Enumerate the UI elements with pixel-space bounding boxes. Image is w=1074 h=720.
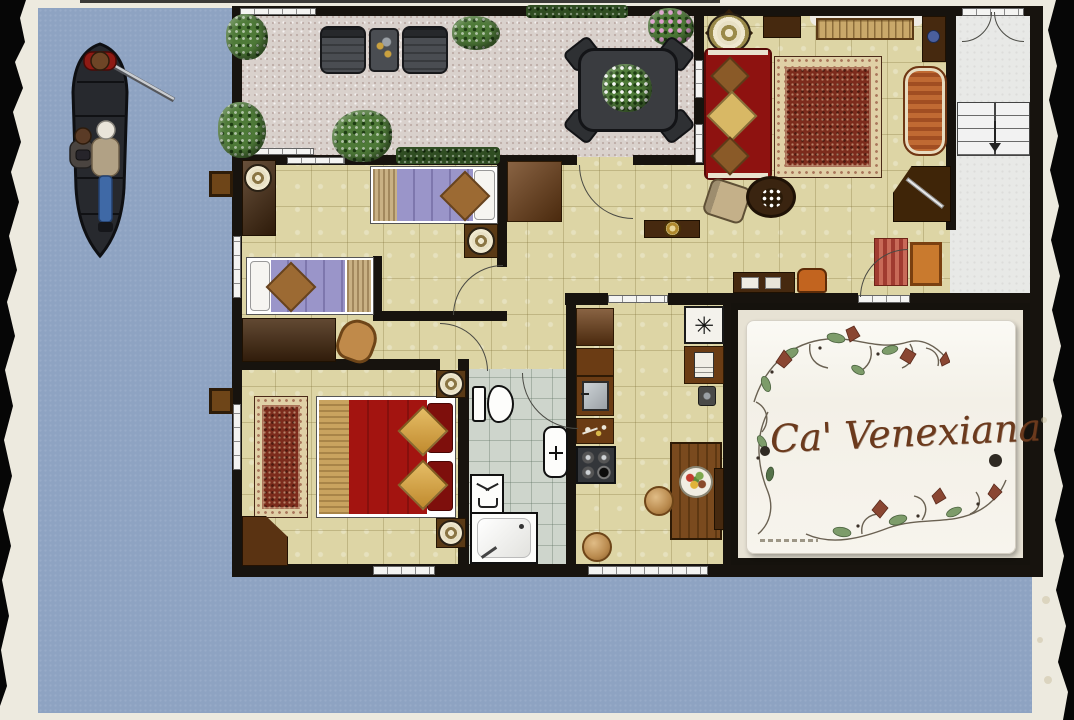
oven-door [694, 352, 714, 378]
bush-terrace-left [218, 102, 266, 158]
lounge-chair-2 [402, 26, 448, 74]
cabinet-living-top [763, 16, 801, 38]
lamp-wardrobe-twin [244, 164, 272, 192]
shower-drain [519, 524, 524, 529]
stair-down-arrow [989, 143, 1001, 152]
torn-edge-left [0, 0, 26, 706]
corner-desk-dot [927, 30, 940, 43]
striped-chaise [903, 66, 947, 156]
desk-stick [906, 177, 945, 208]
desk-twin [242, 318, 336, 362]
washbasin [543, 426, 568, 478]
stool-1 [644, 486, 674, 516]
kitchen-faucet [581, 393, 589, 395]
artist-signature [760, 539, 818, 542]
ceramic-plaque: Ca' Venexiana [746, 320, 1016, 554]
wall-twin-stub [373, 256, 382, 321]
sill-kitchen-door [608, 295, 668, 303]
sofa-cushion-2 [707, 91, 758, 142]
basin-faucet-v [555, 446, 557, 460]
laundry-basket [470, 474, 504, 514]
kitchen-counter-1 [576, 308, 614, 346]
sideboard-papers-2 [765, 277, 781, 289]
master-bed [316, 396, 456, 518]
kitchen-bin [698, 386, 716, 406]
plaque-mount-dot-left [760, 446, 770, 456]
plaque-room: Ca' Venexiana [731, 303, 1030, 565]
orange-side-table [910, 242, 942, 286]
mosaic-table [746, 176, 796, 218]
twin-bed-1 [370, 166, 498, 224]
sideboard-living [733, 272, 795, 293]
tree-terrace [332, 110, 392, 162]
shower-tray [470, 512, 538, 564]
wall-twin-right [497, 155, 507, 267]
floral-vine-bottom-right [802, 476, 1012, 552]
hedge-window-box [396, 147, 500, 164]
window-bottom-1 [373, 566, 435, 575]
floor-plan-postcard: ✳ [0, 0, 1074, 720]
gondola [52, 38, 182, 264]
bush-terrace-mid [452, 16, 500, 50]
window-bottom-2 [588, 566, 708, 575]
bush-terrace-topleft [226, 14, 268, 60]
console-bowl [664, 220, 681, 237]
utensil-knife [582, 427, 598, 434]
wall-outer-right [1030, 6, 1043, 577]
sofa-arm-top [708, 50, 768, 55]
lounge-side-table [369, 28, 399, 72]
decorative-plate [707, 13, 751, 53]
mosaic-tiles [761, 188, 783, 208]
kitchen-counter-2 [576, 348, 614, 376]
runner-rug-field [262, 405, 300, 509]
plaque-mount-dot-right [989, 454, 1002, 467]
red-sofa [704, 48, 772, 180]
window-left-master [233, 404, 241, 470]
sofa-cushion-3 [710, 136, 750, 176]
window-left-twin [233, 236, 241, 298]
master-bed-bench [319, 400, 349, 514]
torn-edge-right [1048, 0, 1074, 720]
utensil-drawer [576, 418, 614, 444]
kitchen-chair-right [714, 468, 724, 530]
gas-hob [576, 446, 616, 484]
basket-fold-bottom [478, 498, 498, 508]
mooring-post-2 [209, 388, 233, 414]
wall-outer-top [232, 6, 1042, 16]
window-living-west-2 [695, 124, 703, 163]
wall-kitchen-left [566, 293, 576, 565]
hedge-terrace-top [526, 5, 628, 18]
radiator-shelf [816, 18, 914, 40]
twin-bed-2 [246, 257, 374, 315]
lounge-chair-1 [320, 26, 366, 74]
runner-rug-master [254, 396, 308, 518]
plaque-text: Ca' Venexiana [769, 407, 1007, 461]
oriental-rug-field [785, 67, 871, 167]
stair-arrow-stem [994, 121, 996, 143]
kitchen-sink-basin [582, 381, 609, 411]
sideboard-papers [741, 277, 759, 289]
fan-icon: ✳ [694, 312, 714, 340]
fan-unit: ✳ [684, 306, 724, 344]
wardrobe-hall [507, 161, 562, 222]
basket-fold-right [485, 483, 498, 491]
sofa-cushion-1 [710, 56, 750, 96]
bed2-bench [347, 260, 371, 312]
kitchen-sink-unit [576, 376, 614, 416]
orange-armchair [797, 268, 827, 293]
lamp-twin [467, 227, 495, 255]
window-twin-top [287, 157, 345, 164]
fruit-bowl [679, 466, 713, 498]
mooring-post-1 [209, 171, 233, 197]
gondolier [84, 52, 116, 70]
lamp-master-1 [438, 371, 464, 397]
toilet-tank [472, 386, 486, 422]
oven-unit [684, 346, 724, 384]
oriental-rug [774, 56, 882, 178]
lamp-master-2 [438, 520, 464, 546]
bed1-bench [373, 169, 397, 221]
stool-2 [582, 532, 612, 562]
staircase [957, 102, 1030, 156]
dining-table-plant [602, 64, 652, 112]
top-edge-hairline [80, 0, 720, 3]
window-living-west-1 [695, 60, 703, 98]
